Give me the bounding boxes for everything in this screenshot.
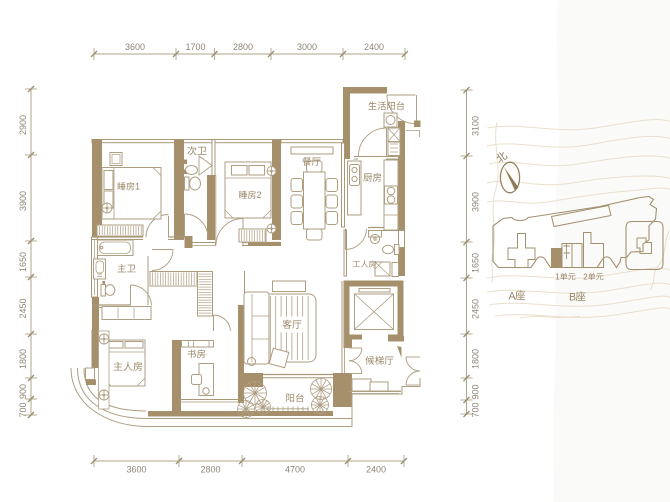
svg-text:3000: 3000 [297, 42, 317, 52]
svg-text:2450: 2450 [471, 299, 481, 319]
svg-text:700: 700 [471, 402, 481, 417]
svg-text:2400: 2400 [364, 42, 384, 52]
svg-text:1800: 1800 [471, 349, 481, 369]
svg-text:2: 2 [583, 272, 588, 281]
svg-text:1700: 1700 [185, 42, 205, 52]
svg-text:1650: 1650 [18, 252, 28, 272]
svg-text:2: 2 [257, 190, 262, 200]
svg-text:2800: 2800 [200, 465, 220, 475]
svg-text:1800: 1800 [18, 349, 28, 369]
svg-text:2900: 2900 [18, 115, 28, 135]
svg-text:3100: 3100 [471, 116, 481, 136]
svg-text:4700: 4700 [285, 465, 305, 475]
svg-text:2400: 2400 [366, 465, 386, 475]
svg-text:3600: 3600 [125, 42, 145, 52]
svg-text:1650: 1650 [471, 253, 481, 273]
svg-text:3900: 3900 [471, 192, 481, 212]
svg-text:3600: 3600 [126, 465, 146, 475]
svg-text:3900: 3900 [18, 191, 28, 211]
svg-text:A: A [509, 290, 517, 302]
svg-text:B: B [569, 291, 576, 303]
svg-text:1: 1 [555, 272, 560, 281]
svg-text:2450: 2450 [18, 298, 28, 318]
svg-text:2800: 2800 [233, 42, 253, 52]
svg-text:1: 1 [135, 182, 140, 192]
svg-text:700: 700 [18, 402, 28, 417]
svg-text:900: 900 [471, 384, 481, 399]
svg-text:900: 900 [18, 384, 28, 399]
